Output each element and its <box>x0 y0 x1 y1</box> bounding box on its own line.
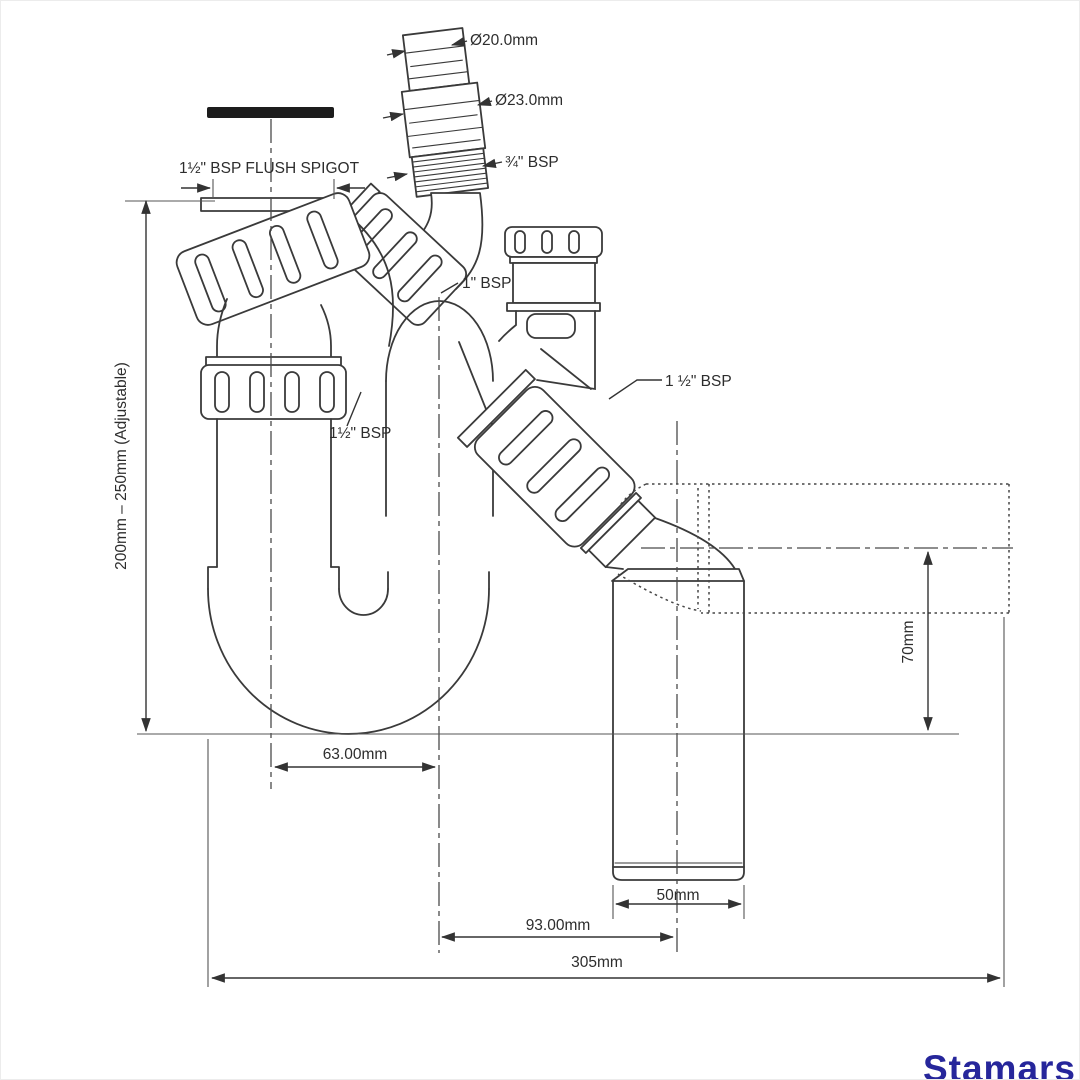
dim-bsp34-arrow-left <box>387 174 407 178</box>
label-union-thread: 1½" BSP <box>329 425 391 442</box>
dim-93mm-text: 93.00mm <box>526 917 591 934</box>
leader-outlet-bsp <box>609 380 662 399</box>
leader-union-bsp <box>347 392 361 426</box>
hose-barb-upper <box>403 28 469 91</box>
telescopic-tube <box>217 419 331 567</box>
dim-63mm-text: 63.00mm <box>323 746 388 763</box>
dim-d23-arrow-left <box>383 114 403 118</box>
dim-50mm-text: 50mm <box>656 887 699 904</box>
dim-d20-arrow-left <box>387 51 405 55</box>
trap-diagram: Ø20.0mm Ø23.0mm ¾" BSP 1½" BSP FLUSH SPI… <box>1 1 1080 1080</box>
label-flush-spigot: 1½" BSP FLUSH SPIGOT <box>179 160 360 177</box>
ext-spigot <box>213 179 334 199</box>
dim-305mm-text: 305mm <box>571 954 623 971</box>
dim-70mm-text: 70mm <box>900 620 917 663</box>
label-hose-thread: ¾" BSP <box>505 154 559 171</box>
technical-drawing-page: Ø20.0mm Ø23.0mm ¾" BSP 1½" BSP FLUSH SPI… <box>0 0 1080 1080</box>
overflow-fitting <box>499 227 602 389</box>
dim-height-text: 200mm – 250mm (Adjustable) <box>113 362 130 570</box>
label-outlet-thread: 1 ½" BSP <box>665 373 732 390</box>
outlet-elbow <box>655 518 735 569</box>
nut-union-left <box>201 357 346 419</box>
nut-outlet-45 <box>458 370 664 576</box>
watermark-logo: Stamars <box>923 1048 1076 1080</box>
hose-barb-lower <box>402 83 485 158</box>
label-inlet-thread: 1" BSP <box>462 275 511 292</box>
u-bend-socket <box>208 567 339 589</box>
label-hose-od-mid: Ø23.0mm <box>495 92 563 109</box>
label-hose-od-top: Ø20.0mm <box>470 32 538 49</box>
outlet-pipe-vertical <box>612 569 744 880</box>
sink-surface-bar <box>207 107 334 118</box>
hose-connector <box>395 27 490 197</box>
